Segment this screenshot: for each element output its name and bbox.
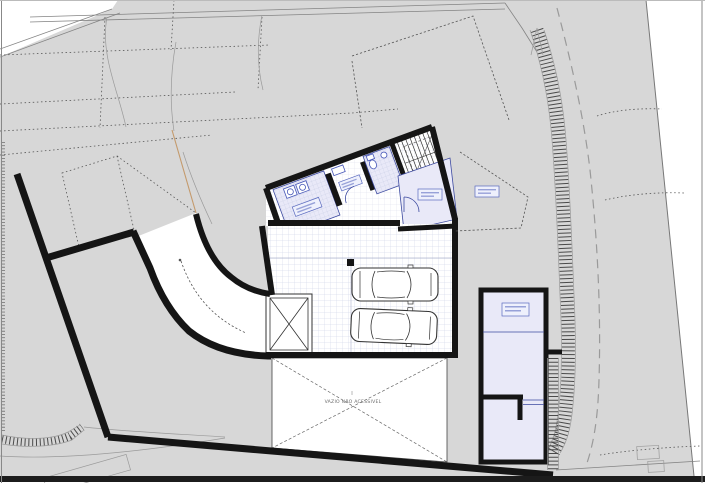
void-area: VAZIO NÃO ACESSIVEL <box>272 358 447 462</box>
mirror <box>408 301 413 304</box>
room-label-box <box>418 189 442 200</box>
column <box>347 259 354 266</box>
car-1 <box>352 265 438 304</box>
elevator-shaft <box>266 294 312 354</box>
terrain-label <box>475 186 499 197</box>
car-2 <box>350 305 438 348</box>
drawing-sheet: VAZIO NÃO ACESSIVEL <box>0 0 705 483</box>
room-label-box <box>502 303 529 316</box>
mirror <box>408 265 413 268</box>
site-plan-drawing: VAZIO NÃO ACESSIVEL <box>0 0 705 483</box>
void-label: VAZIO NÃO ACESSIVEL <box>325 398 382 405</box>
bottom-bar <box>0 476 705 482</box>
